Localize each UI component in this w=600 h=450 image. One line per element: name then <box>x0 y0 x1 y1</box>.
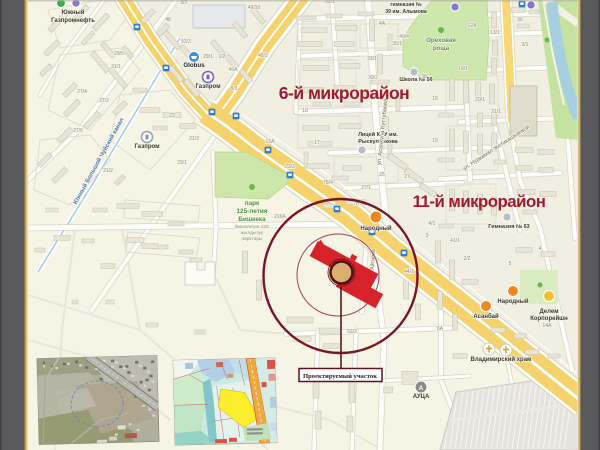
svg-text:25: 25 <box>379 172 385 178</box>
svg-text:48/2: 48/2 <box>258 53 268 59</box>
svg-text:Ореховая: Ореховая <box>426 37 456 44</box>
svg-text:19/1: 19/1 <box>458 66 468 72</box>
svg-text:17: 17 <box>314 140 320 146</box>
svg-text:29/1: 29/1 <box>203 54 213 60</box>
svg-text:125-летия: 125-летия <box>236 208 267 215</box>
svg-text:8/3: 8/3 <box>231 86 238 92</box>
svg-text:Бишкека: Бишкека <box>238 216 266 223</box>
svg-text:Асанбай: Асанбай <box>473 313 499 320</box>
svg-text:A: A <box>419 385 424 392</box>
svg-text:23: 23 <box>169 113 175 119</box>
svg-text:49/10: 49/10 <box>248 5 261 11</box>
svg-text:Народный: Народный <box>360 225 391 232</box>
svg-text:4A: 4A <box>379 21 386 27</box>
svg-text:23/1: 23/1 <box>177 160 187 166</box>
svg-text:Газпром: Газпром <box>134 144 160 150</box>
svg-text:15A: 15A <box>266 139 276 145</box>
svg-text:4: 4 <box>539 246 542 252</box>
svg-text:36: 36 <box>517 17 523 23</box>
svg-text:23/2: 23/2 <box>285 164 295 170</box>
svg-text:4/1: 4/1 <box>429 221 436 227</box>
svg-text:39 им. Алымова: 39 им. Алымова <box>385 9 427 15</box>
svg-text:31/1: 31/1 <box>111 64 121 70</box>
svg-text:27/1: 27/1 <box>361 185 371 191</box>
svg-text:27/2: 27/2 <box>99 98 109 104</box>
svg-text:20/1: 20/1 <box>475 97 485 103</box>
svg-text:52/2: 52/2 <box>347 329 357 335</box>
svg-text:53/3: 53/3 <box>181 39 191 45</box>
svg-text:44/1: 44/1 <box>404 269 414 275</box>
svg-text:41/1: 41/1 <box>450 238 460 244</box>
svg-text:27/4: 27/4 <box>77 89 87 95</box>
svg-text:парк: парк <box>245 200 260 207</box>
svg-text:39/2: 39/2 <box>368 75 378 81</box>
svg-text:19: 19 <box>432 138 438 144</box>
svg-text:40/4: 40/4 <box>399 34 409 40</box>
svg-text:Лицей КЭУ им.: Лицей КЭУ им. <box>358 131 398 138</box>
svg-text:33/1: 33/1 <box>367 56 377 62</box>
svg-text:216А: 216А <box>274 214 286 220</box>
svg-text:12A: 12A <box>468 23 478 29</box>
svg-text:жылдызуу: жылдызуу <box>241 231 264 236</box>
svg-text:Проектируемый участок: Проектируемый участок <box>303 373 377 380</box>
svg-text:35/1: 35/1 <box>392 41 402 47</box>
svg-text:Globus: Globus <box>183 62 205 69</box>
svg-text:3/1: 3/1 <box>522 42 529 48</box>
svg-text:21/2: 21/2 <box>189 136 199 142</box>
svg-text:78/4: 78/4 <box>323 180 333 186</box>
svg-text:2/2: 2/2 <box>464 256 471 262</box>
svg-text:гимназия №: гимназия № <box>390 2 422 8</box>
svg-text:1/2: 1/2 <box>219 54 226 60</box>
svg-text:Бишкектин 125: Бишкектин 125 <box>235 224 269 230</box>
svg-text:10: 10 <box>302 108 308 114</box>
svg-text:14A: 14A <box>543 323 553 329</box>
svg-text:19: 19 <box>432 96 438 102</box>
svg-text:48: 48 <box>165 17 171 23</box>
svg-text:27: 27 <box>404 174 410 180</box>
svg-text:38: 38 <box>421 74 427 80</box>
svg-text:11-й микрорайон: 11-й микрорайон <box>413 192 546 211</box>
svg-text:21/2: 21/2 <box>103 168 113 174</box>
svg-text:27/6: 27/6 <box>73 128 83 134</box>
svg-text:29/5: 29/5 <box>114 51 124 57</box>
svg-text:Корпорейшн: Корпорейшн <box>530 315 568 322</box>
svg-text:5: 5 <box>509 261 512 267</box>
svg-text:Газпром: Газпром <box>195 84 221 90</box>
svg-text:Народный: Народный <box>497 298 528 305</box>
svg-text:6-й микрорайон: 6-й микрорайон <box>279 83 409 103</box>
svg-text:Делем: Делем <box>539 309 559 315</box>
svg-text:роща: роща <box>433 45 450 52</box>
svg-text:Гимназия № 63: Гимназия № 63 <box>488 224 530 230</box>
svg-text:3: 3 <box>426 233 429 239</box>
svg-text:АУЦА: АУЦА <box>413 394 430 400</box>
svg-text:13/1: 13/1 <box>490 30 500 36</box>
svg-text:парктары: парктары <box>241 237 263 242</box>
svg-text:Владимирский храм: Владимирский храм <box>471 356 532 363</box>
svg-text:21/1: 21/1 <box>491 109 501 115</box>
svg-text:46A: 46A <box>229 67 239 73</box>
svg-text:Южный: Южный <box>62 9 85 16</box>
svg-text:Газпромнефть: Газпромнефть <box>51 17 95 24</box>
svg-text:6A: 6A <box>437 326 444 332</box>
